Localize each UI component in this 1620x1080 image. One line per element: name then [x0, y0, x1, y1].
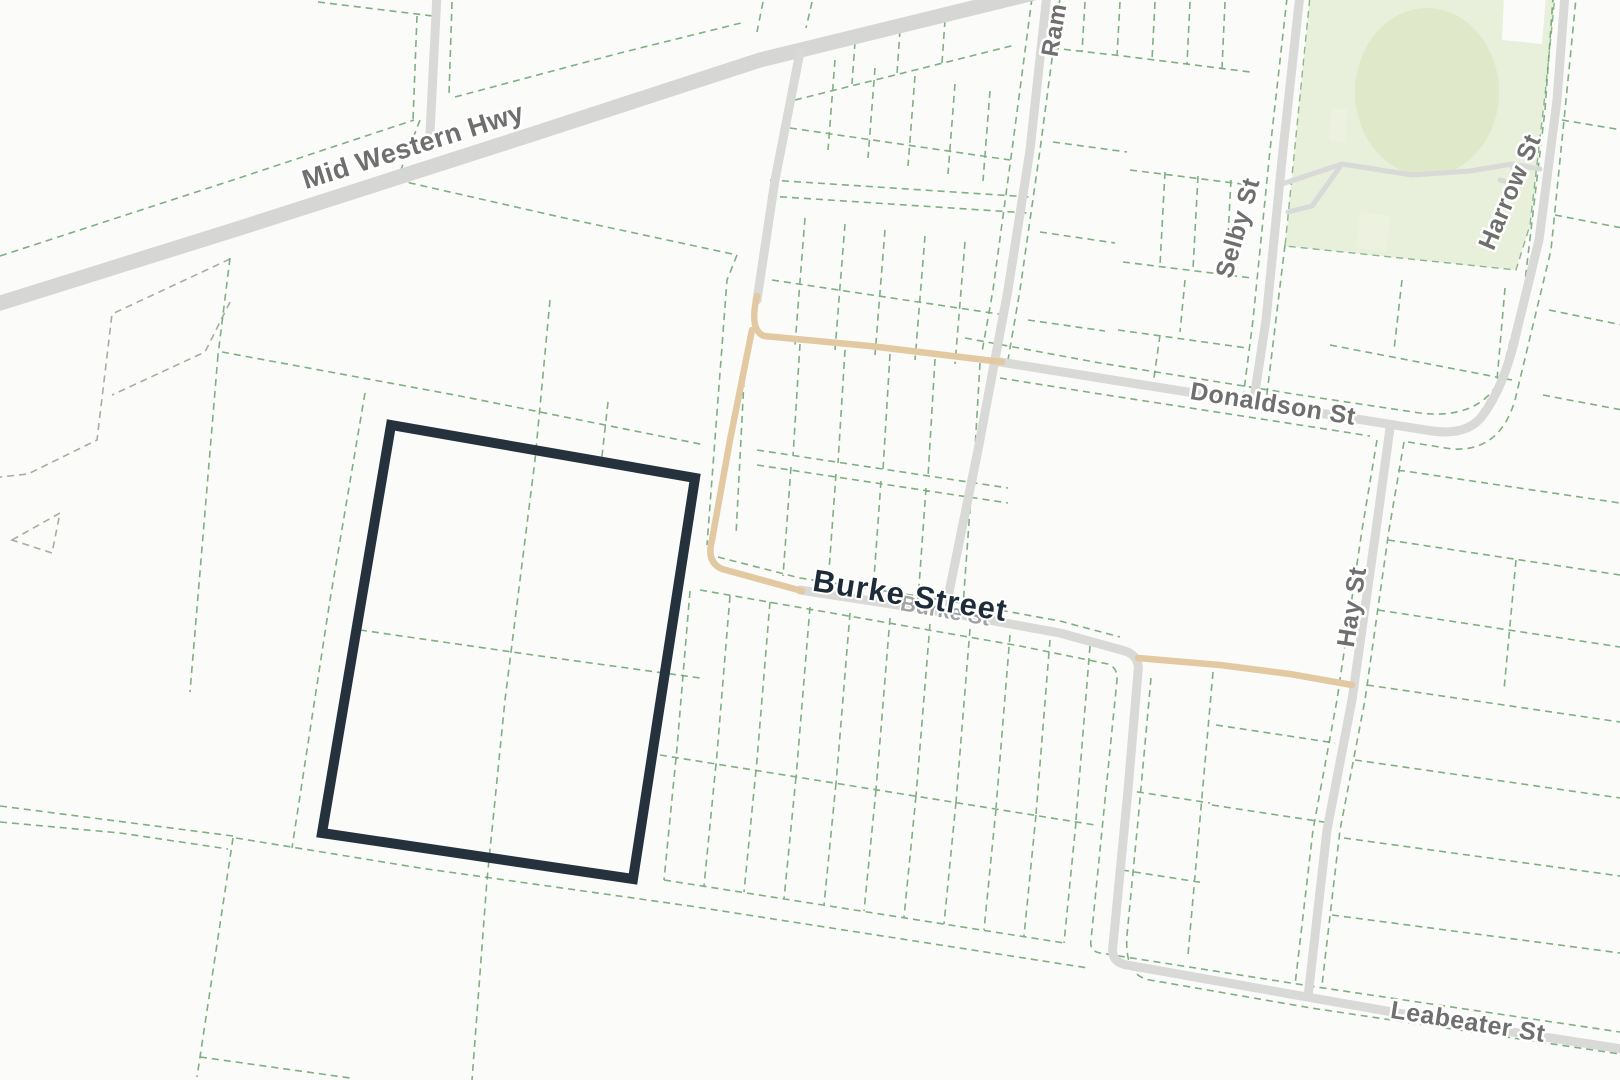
unsealed-donaldson-west: [754, 296, 1002, 362]
terrain-lines: [0, 259, 230, 553]
road-label-leabeater-st: Leabeater St: [1389, 996, 1548, 1048]
road-mid-western-hwy: [0, 0, 1046, 305]
road-burke-leabeater: [800, 590, 1620, 1049]
unsealed-burke-west: [710, 330, 802, 591]
park-layer: [1285, 0, 1555, 270]
park-notch: [1502, 0, 1546, 44]
road-label-selby-st: Selby St: [1210, 175, 1265, 282]
road-hay-st: [1308, 428, 1390, 997]
road-label-donaldson-st: Donaldson St: [1188, 377, 1358, 431]
map-svg: Mid Western Hwy Ram Selby St Harrow St D…: [0, 0, 1620, 1080]
map-canvas[interactable]: Mid Western Hwy Ram Selby St Harrow St D…: [0, 0, 1620, 1080]
road-label-hay-st: Hay St: [1332, 565, 1372, 649]
sports-oval: [1355, 8, 1499, 176]
road-label-burke-street: Burke Street: [811, 563, 1010, 628]
parcel-lines-center-block: [222, 180, 744, 1080]
unsealed-burke-east: [1138, 658, 1352, 685]
parcel-lines-south: [660, 557, 1620, 1054]
road-mid-stub: [757, 52, 800, 300]
road-north-stub: [430, 0, 437, 133]
parcel-lines-northwest: [0, 2, 1088, 1078]
